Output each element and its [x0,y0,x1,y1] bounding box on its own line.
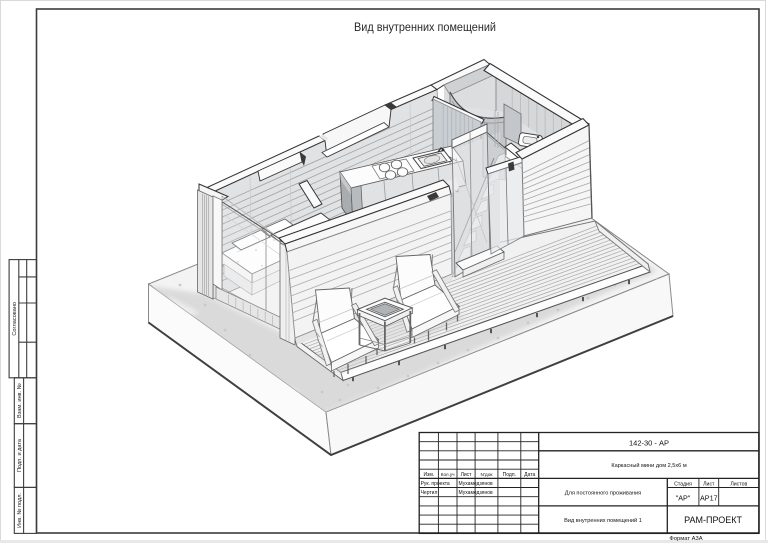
svg-text:Лист: Лист [703,481,715,487]
svg-text:Мухамедзянов: Мухамедзянов [459,490,494,496]
svg-text:Рук. проекта: Рук. проекта [421,481,450,487]
svg-text:Стадия: Стадия [674,481,692,487]
svg-text:Дата: Дата [524,472,535,478]
svg-text:Вид внутренних помещений: Вид внутренних помещений [354,20,496,34]
svg-text:Вид внутренних помещений 1: Вид внутренних помещений 1 [564,517,642,524]
svg-text:"АР": "АР" [676,494,691,503]
svg-text:Мухамедзянов: Мухамедзянов [459,481,494,487]
svg-text:Кол.уч: Кол.уч [441,472,455,477]
svg-text:Согласовано: Согласовано [12,302,18,336]
svg-text:142-30 - АР: 142-30 - АР [629,439,669,448]
svg-text:Изм.: Изм. [423,472,434,478]
svg-text:N'док: N'док [481,472,494,478]
svg-text:Каркасный мини дом 2,5х6 м: Каркасный мини дом 2,5х6 м [611,462,686,469]
svg-text:Подп.: Подп. [503,472,516,478]
svg-text:Взам. инв. №: Взам. инв. № [17,383,23,418]
svg-text:Формат А3А: Формат А3А [669,536,702,542]
svg-text:Листов: Листов [730,481,747,487]
svg-text:РАМ-ПРОЕКТ: РАМ-ПРОЕКТ [684,515,742,525]
svg-text:Чертил: Чертил [421,490,438,496]
svg-text:Для постоянного проживания: Для постоянного проживания [565,491,641,497]
svg-text:Подп. и дата: Подп. и дата [17,438,23,472]
svg-text:Лист: Лист [461,472,473,478]
svg-text:АР17: АР17 [700,494,718,503]
svg-text:Инв. № подл.: Инв. № подл. [17,493,23,528]
